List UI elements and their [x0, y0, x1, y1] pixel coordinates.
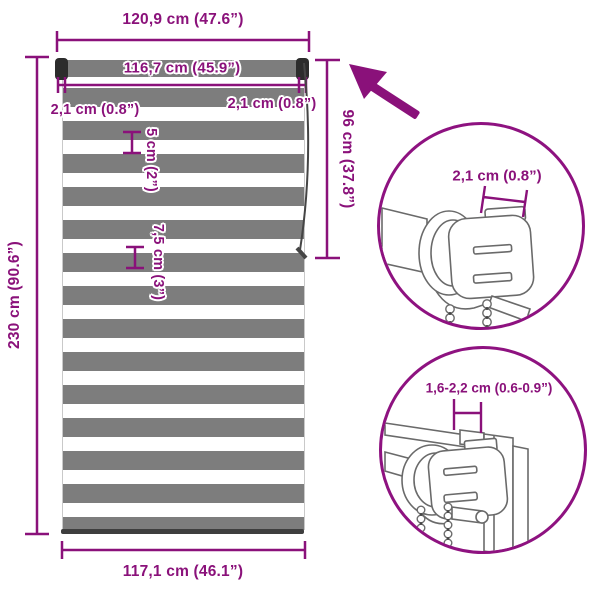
bottom-rail [61, 529, 304, 534]
right-offset-label: 2,1 cm (0.8”) [228, 96, 317, 112]
zebra-fabric-stripes [62, 80, 305, 530]
total-width-label: 120,9 cm (47.6”) [122, 11, 243, 29]
right-bracket-cap [296, 58, 309, 80]
chain-length-label: 96 cm (37.8”) [338, 109, 356, 208]
bracket-depth-label: 2,1 cm (0.8”) [452, 168, 541, 185]
clamp-range-label: 1,6-2,2 cm (0.6-0.9”) [426, 381, 553, 396]
frame-clamp-detail-circle: 1,6-2,2 cm (0.6-0.9”) [379, 346, 587, 554]
bracket-depth-detail-circle: 2,1 cm (0.8”) [377, 122, 585, 330]
left-bracket-cap [55, 58, 68, 80]
roller-width-label: 116,7 cm (45.9”) [124, 60, 241, 77]
fabric-width-label: 117,1 cm (46.1”) [123, 563, 243, 581]
product-dimension-diagram: 120,9 cm (47.6”) 116,7 cm (45.9”) 2,1 cm… [0, 0, 600, 600]
ball-chain-drawing [446, 300, 491, 330]
solid-stripe-label: 7,5 cm (3”) [150, 224, 166, 300]
bracket-side-view-drawing [380, 125, 585, 330]
height-label: 230 cm (90.6”) [6, 241, 24, 349]
left-offset-label: 2,1 cm (0.8”) [51, 102, 140, 118]
mount-direction-arrow-icon [349, 64, 420, 120]
sheer-stripe-label: 5 cm (2”) [143, 128, 159, 192]
